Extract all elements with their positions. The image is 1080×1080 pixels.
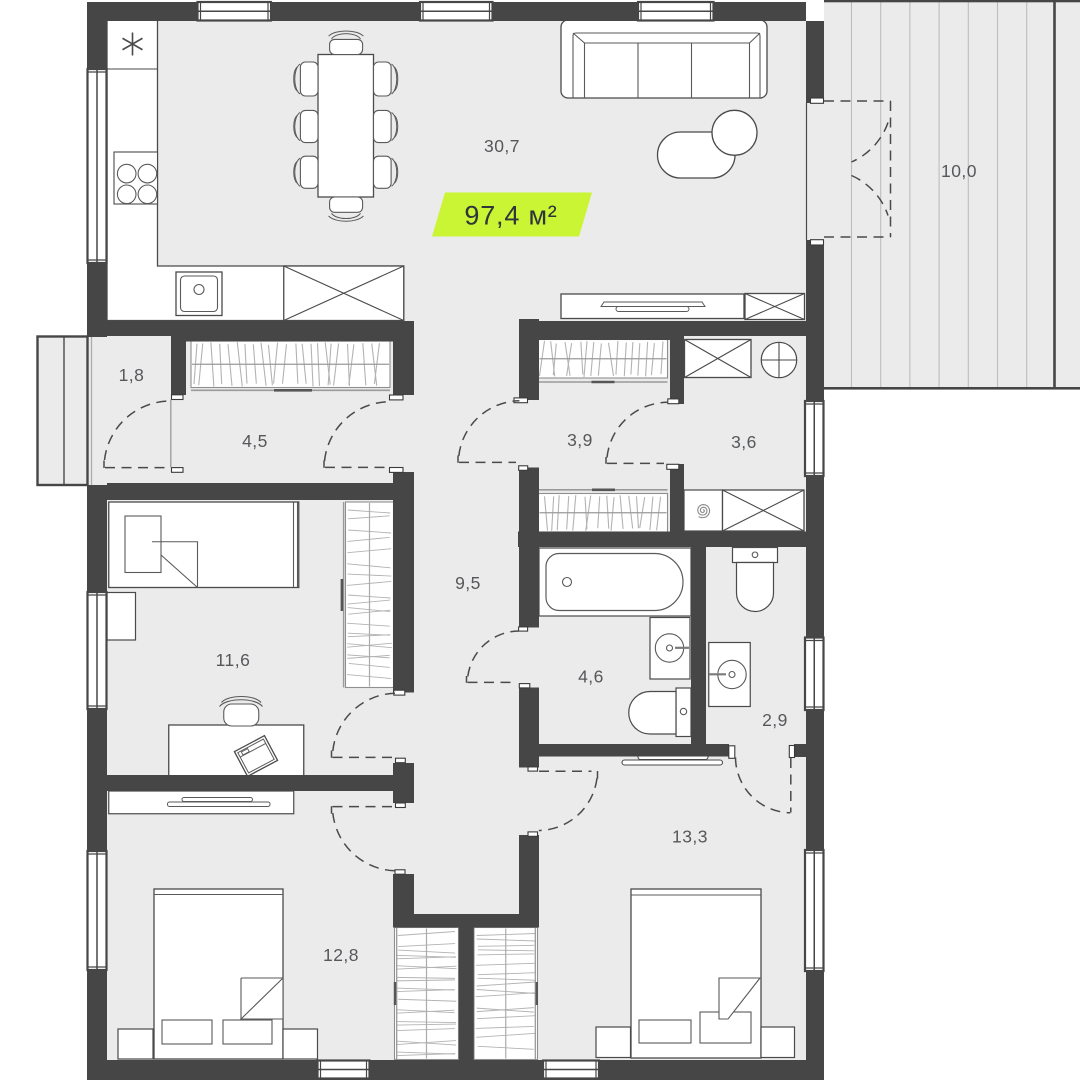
svg-text:1,8: 1,8 bbox=[119, 365, 145, 385]
svg-text:2,9: 2,9 bbox=[762, 710, 788, 730]
svg-text:10,0: 10,0 bbox=[941, 161, 977, 181]
svg-text:13,3: 13,3 bbox=[672, 827, 708, 847]
svg-text:12,8: 12,8 bbox=[323, 945, 359, 965]
svg-text:4,5: 4,5 bbox=[242, 431, 268, 451]
svg-text:9,5: 9,5 bbox=[455, 573, 481, 593]
svg-text:30,7: 30,7 bbox=[484, 136, 520, 156]
svg-text:3,6: 3,6 bbox=[731, 432, 757, 452]
svg-text:97,4 м²: 97,4 м² bbox=[464, 201, 557, 231]
svg-text:3,9: 3,9 bbox=[567, 430, 593, 450]
svg-text:11,6: 11,6 bbox=[216, 650, 251, 670]
svg-text:4,6: 4,6 bbox=[578, 667, 604, 687]
